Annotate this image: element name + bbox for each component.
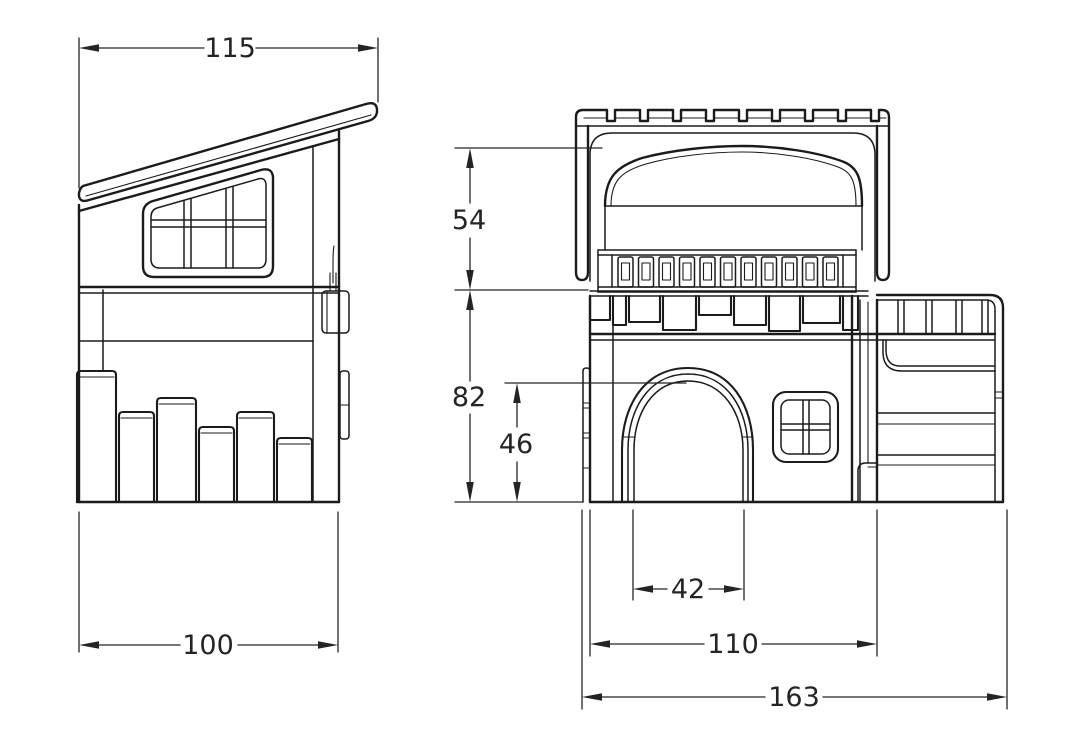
baluster-railing bbox=[598, 250, 856, 292]
dimension-door-height: 46 bbox=[499, 383, 686, 502]
merlon-parapet bbox=[590, 291, 995, 340]
stair-railing bbox=[877, 295, 1003, 502]
cap-left-wing bbox=[576, 126, 588, 280]
arrowhead-right bbox=[724, 585, 744, 593]
paling-fence-base bbox=[77, 371, 339, 502]
dim-label-side-top-width: 115 bbox=[204, 33, 256, 64]
arrowhead-left bbox=[582, 693, 602, 701]
arrowhead-down bbox=[466, 482, 474, 502]
drawing-canvas: 115 100 bbox=[0, 0, 1080, 746]
arched-door bbox=[622, 368, 753, 502]
balusters bbox=[618, 257, 838, 287]
technical-drawing: 115 100 bbox=[0, 0, 1080, 746]
square-window bbox=[773, 392, 838, 462]
dimension-door-width: 42 bbox=[633, 510, 744, 605]
arrowhead-left bbox=[633, 585, 653, 593]
arrowhead-down bbox=[466, 270, 474, 290]
dimension-side-base-width: 100 bbox=[79, 512, 338, 661]
dim-label-side-base-width: 100 bbox=[182, 630, 234, 661]
dimension-overall-width: 163 bbox=[582, 510, 1007, 713]
arrowhead-right bbox=[987, 693, 1007, 701]
front-view: 54 82 46 42 bbox=[452, 110, 1007, 713]
dim-label-door-width: 42 bbox=[671, 574, 705, 605]
dome-cushion bbox=[605, 146, 862, 250]
arrowhead-down bbox=[513, 482, 521, 502]
slanted-window bbox=[143, 169, 273, 277]
arrowhead-left bbox=[79, 641, 99, 649]
arrowhead-up bbox=[466, 148, 474, 168]
dim-label-lower-height: 82 bbox=[452, 382, 486, 413]
dimension-upper-height: 54 bbox=[452, 148, 602, 290]
dim-label-overall-width: 163 bbox=[768, 682, 820, 713]
dim-label-door-height: 46 bbox=[499, 429, 533, 460]
arrowhead-up bbox=[466, 290, 474, 310]
arrowhead-right bbox=[318, 641, 338, 649]
latch-block bbox=[322, 273, 349, 333]
sloped-roof bbox=[79, 103, 377, 201]
staircase bbox=[858, 295, 1003, 502]
arrowhead-up bbox=[513, 383, 521, 403]
hinge-tab bbox=[340, 371, 349, 439]
arrowhead-right bbox=[358, 44, 378, 52]
cap-right-wing bbox=[877, 126, 889, 280]
arrowhead-left bbox=[79, 44, 99, 52]
arrowhead-right bbox=[857, 640, 877, 648]
dim-label-body-width: 110 bbox=[707, 629, 759, 660]
dimension-side-top-width: 115 bbox=[79, 33, 378, 188]
castle-body bbox=[583, 296, 1003, 502]
arrowhead-left bbox=[590, 640, 610, 648]
side-view: 115 100 bbox=[77, 33, 378, 661]
dim-label-upper-height: 54 bbox=[452, 205, 486, 236]
